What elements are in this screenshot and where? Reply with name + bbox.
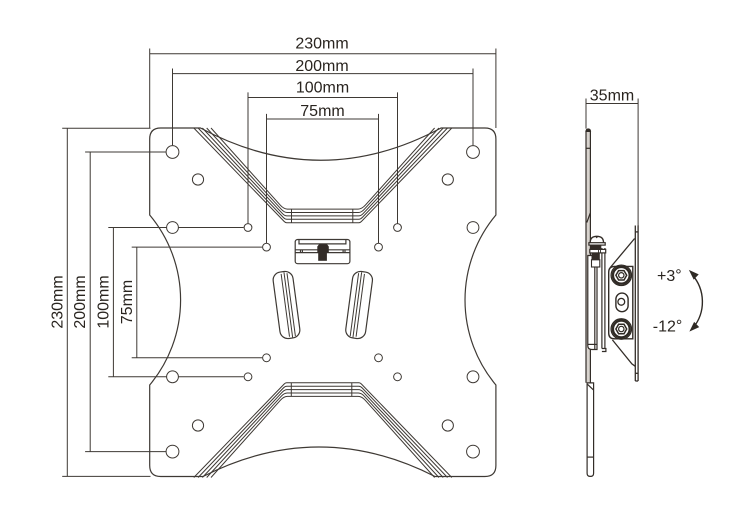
svg-text:200mm: 200mm [72,275,89,328]
svg-text:+3°: +3° [657,267,682,285]
svg-text:75mm: 75mm [300,103,344,120]
svg-text:200mm: 200mm [295,58,348,75]
svg-text:75mm: 75mm [119,280,136,324]
svg-text:230mm: 230mm [295,36,348,53]
svg-text:-12°: -12° [653,318,683,336]
svg-text:100mm: 100mm [96,275,113,328]
svg-text:100mm: 100mm [296,80,349,97]
svg-text:230mm: 230mm [49,275,66,328]
svg-text:35mm: 35mm [590,87,634,104]
